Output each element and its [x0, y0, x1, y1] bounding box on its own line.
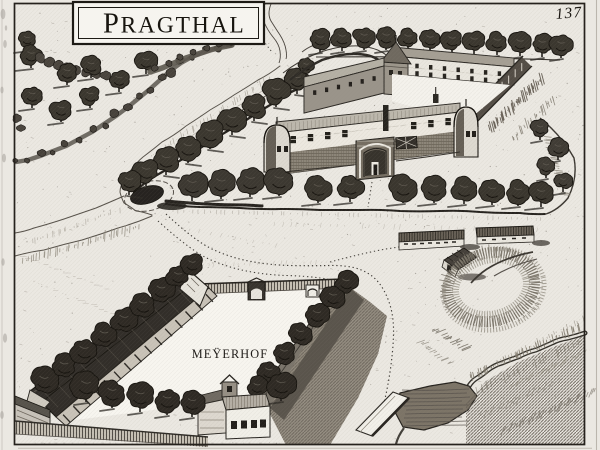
svg-text:137: 137 — [555, 4, 583, 23]
svg-text:PRAGTHAL: PRAGTHAL — [103, 9, 246, 40]
